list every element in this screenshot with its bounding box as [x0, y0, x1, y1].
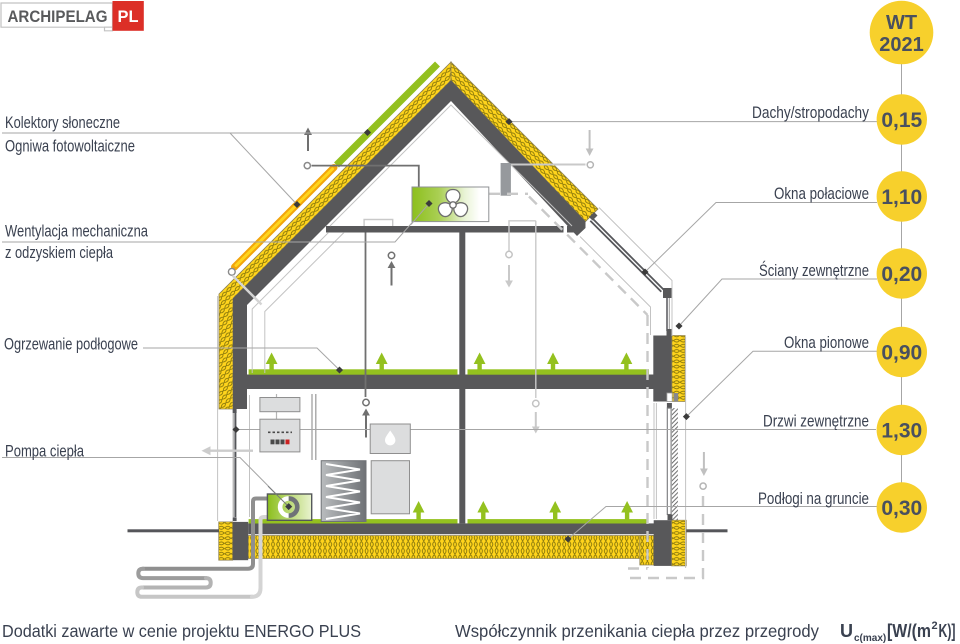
svg-text:2: 2 — [932, 620, 938, 632]
svg-text:Pompa ciepła: Pompa ciepła — [5, 443, 85, 461]
svg-text:Kolektory słoneczne: Kolektory słoneczne — [5, 114, 120, 132]
svg-text:Dachy/stropodachy: Dachy/stropodachy — [752, 104, 870, 122]
svg-text:Wentylacja mechaniczna: Wentylacja mechaniczna — [5, 223, 149, 241]
svg-text:U: U — [840, 621, 853, 641]
svg-text:WT: WT — [886, 12, 917, 34]
svg-text:c(max): c(max) — [854, 633, 886, 644]
svg-text:Okna połaciowe: Okna połaciowe — [774, 185, 869, 203]
svg-text:[W/(m: [W/(m — [887, 621, 931, 641]
svg-text:Okna pionowe: Okna pionowe — [784, 334, 869, 352]
svg-text:Współczynnik przenikania ciepł: Współczynnik przenikania ciepła przez pr… — [455, 621, 819, 641]
svg-text:z odzyskiem ciepła: z odzyskiem ciepła — [5, 244, 114, 262]
svg-text:Dodatki zawarte w cenie projek: Dodatki zawarte w cenie projektu ENERGO … — [2, 621, 361, 641]
svg-text:0,30: 0,30 — [881, 497, 922, 520]
svg-text:2021: 2021 — [879, 34, 924, 56]
svg-text:PL: PL — [118, 7, 139, 26]
svg-text:0,15: 0,15 — [881, 109, 922, 132]
svg-text:Ściany zewnętrzne: Ściany zewnętrzne — [759, 261, 869, 280]
svg-text:Ogniwa fotowoltaiczne: Ogniwa fotowoltaiczne — [5, 138, 135, 156]
svg-text:1,10: 1,10 — [881, 186, 922, 209]
svg-text:1,30: 1,30 — [881, 420, 922, 443]
svg-text:Drzwi zewnętrzne: Drzwi zewnętrzne — [763, 413, 869, 431]
svg-text:K)]: K)] — [939, 621, 956, 641]
svg-text:0,90: 0,90 — [881, 342, 922, 365]
svg-text:ARCHIPELAG: ARCHIPELAG — [8, 7, 108, 26]
svg-text:Ogrzewanie podłogowe: Ogrzewanie podłogowe — [4, 336, 138, 354]
svg-text:0,20: 0,20 — [881, 263, 922, 286]
svg-text:Podłogi na gruncie: Podłogi na gruncie — [758, 490, 869, 508]
